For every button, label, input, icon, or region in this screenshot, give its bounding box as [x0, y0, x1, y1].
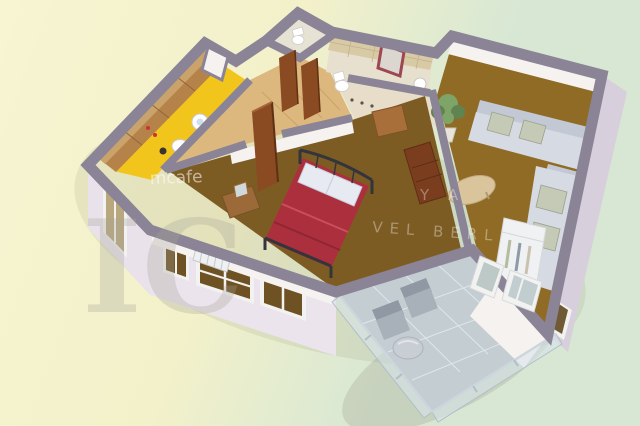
balcony-ottoman — [393, 337, 423, 359]
wc-toilet — [292, 36, 304, 45]
door-wc — [279, 50, 298, 112]
watermark-large: IC — [82, 193, 244, 343]
watermark-fragment-left: mcafe — [149, 167, 202, 189]
floorplan-render: IC mcafe Y A VEL BERL — [0, 0, 640, 426]
watermark-fragment-mid: Y A — [419, 186, 465, 204]
door-bathroom — [301, 58, 320, 120]
screenshot-stage: IC mcafe Y A VEL BERL — [0, 0, 640, 426]
